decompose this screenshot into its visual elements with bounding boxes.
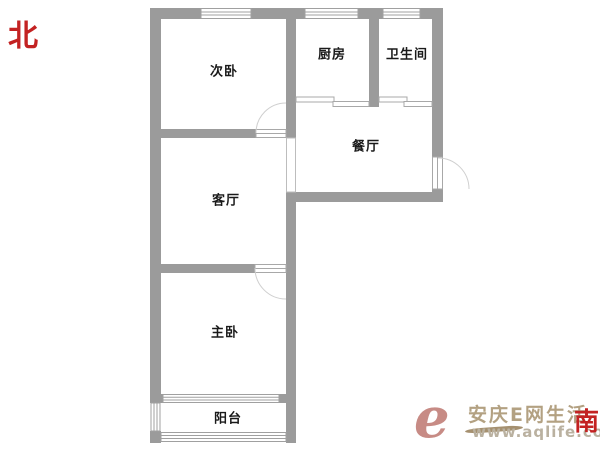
watermark-logo-e: e xyxy=(414,390,450,446)
window-kitchen-north xyxy=(305,9,358,19)
window-balcony-left xyxy=(151,403,160,431)
room-label-bedroom2: 次卧 xyxy=(210,61,238,80)
compass-north-label: 北 xyxy=(8,22,38,52)
window-bathroom-north xyxy=(383,9,420,19)
wall-master-balcony-stub-left xyxy=(150,394,163,403)
window-bedroom2-north xyxy=(201,9,251,19)
room-label-master: 主卧 xyxy=(211,322,239,341)
sliding-door-bathroom xyxy=(379,97,432,107)
door-arc-bedroom2 xyxy=(256,103,286,133)
wall-right-upper xyxy=(432,8,443,157)
walls xyxy=(150,8,443,443)
room-label-kitchen: 厨房 xyxy=(318,44,346,63)
wall-living-bottom xyxy=(150,264,255,273)
wall-center-lower xyxy=(286,192,296,443)
wall-center-upper xyxy=(286,8,296,138)
passage-living-dining xyxy=(287,138,296,192)
wall-kitchen-bath-divider xyxy=(369,19,379,97)
wall-left xyxy=(150,8,161,403)
window-balcony-front xyxy=(161,433,286,442)
window-master-to-balcony xyxy=(163,395,279,403)
door-leaf-master xyxy=(255,265,286,273)
sliding-door-kitchen xyxy=(296,97,369,107)
floor-plan-image: 次卧 厨房 卫生间 餐厅 客厅 主卧 阳台 北 南 e 安庆E网生活 www.a… xyxy=(0,0,600,450)
door-leaf-entry xyxy=(433,157,443,189)
sliding-doors xyxy=(296,97,432,107)
wall-kitchen-band-stub xyxy=(369,97,379,107)
floor-plan-drawing xyxy=(0,0,600,450)
wall-left-balcony-corner xyxy=(150,431,161,443)
compass-south-label: 南 xyxy=(574,409,599,434)
wall-bedroom2-bottom xyxy=(150,129,256,138)
room-label-living: 客厅 xyxy=(212,190,240,209)
room-label-bathroom: 卫生间 xyxy=(386,44,428,63)
windows xyxy=(151,9,420,442)
wall-dining-bottom xyxy=(286,192,443,202)
room-label-dining: 餐厅 xyxy=(352,136,380,155)
wall-master-balcony-stub-right xyxy=(279,394,296,403)
door-leaf-bedroom2 xyxy=(256,130,286,138)
room-label-balcony: 阳台 xyxy=(214,408,242,427)
